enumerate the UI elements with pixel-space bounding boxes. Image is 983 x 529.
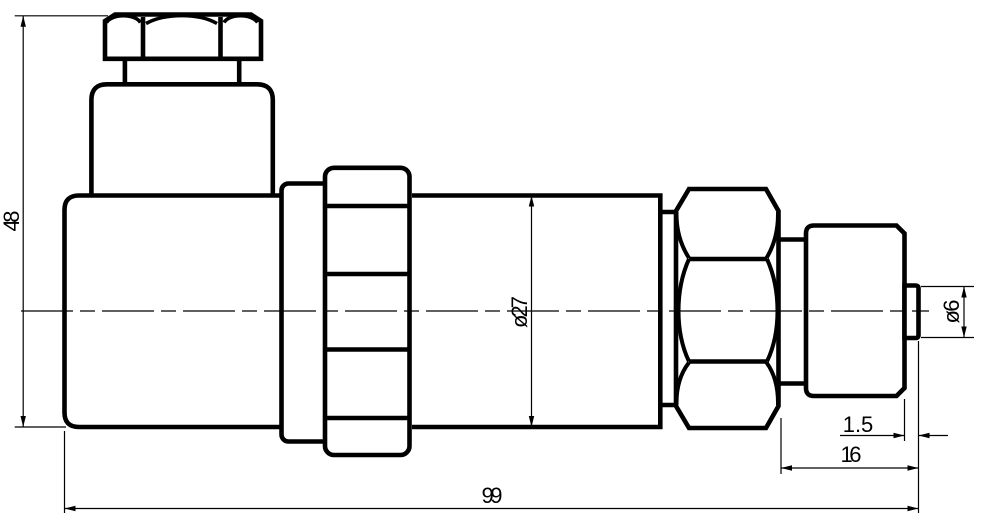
svg-text:99: 99 <box>482 483 503 508</box>
svg-text:1.5: 1.5 <box>843 412 874 437</box>
svg-text:ø6: ø6 <box>939 300 964 324</box>
svg-text:ø27: ø27 <box>507 296 532 328</box>
svg-text:48: 48 <box>0 211 24 232</box>
svg-text:16: 16 <box>841 442 862 467</box>
